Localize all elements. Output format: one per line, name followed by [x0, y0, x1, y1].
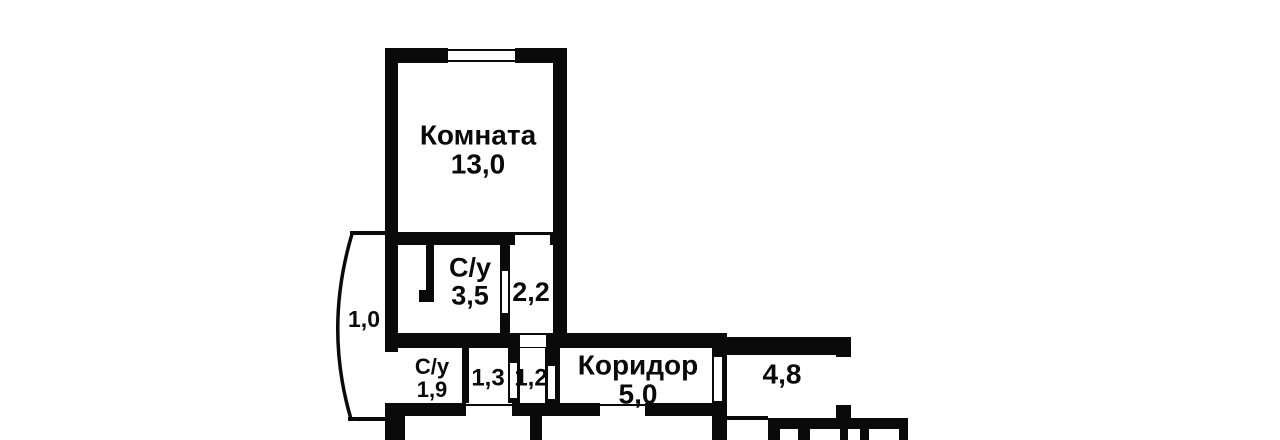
wall-komnata-right [553, 48, 567, 346]
room-label-hall22: 2,2 [512, 278, 550, 306]
room-komnata-area: 13,0 [420, 150, 536, 179]
room-label-balcony: 1,0 [348, 307, 380, 331]
window-komnata-line-top [448, 49, 515, 51]
wall-lower-right-stub-2 [798, 429, 810, 440]
wall-su35-left-foot [419, 290, 434, 302]
wall-lower-right-stub-5 [899, 429, 908, 440]
wall-stub-below-r13 [530, 416, 542, 440]
door-r12-koridor [548, 366, 555, 399]
wall-lower-right-bar [768, 418, 908, 429]
room-r48-area: 4,8 [763, 359, 802, 388]
door-balcony-opening [383, 352, 400, 403]
room-label-r48: 4,8 [763, 359, 802, 388]
room-label-koridor: Коридор 5,0 [578, 351, 699, 410]
room-su19-name: С/у [415, 355, 449, 378]
wall-lower-right-stub-4 [860, 429, 869, 440]
lintel-bottom-gap-left [466, 404, 512, 406]
room-label-komnata: Комната 13,0 [420, 121, 536, 180]
door-su35-hall22 [502, 271, 508, 313]
room-r13-area: 1,3 [471, 365, 504, 390]
door-koridor-r48 [714, 357, 722, 401]
room-su35-name: С/у [449, 254, 491, 282]
window-under-r48 [727, 416, 768, 420]
door-komnata-hall22 [515, 235, 550, 245]
wall-su19-r13 [462, 348, 469, 403]
floor-plan: Комната 13,0 С/у 3,5 2,2 1,0 С/у 1,9 1,3… [0, 0, 1280, 440]
door-r48-right-opening [836, 357, 851, 405]
wall-lower-right-stub-3 [840, 429, 848, 440]
wall-lower-right-stub-1 [768, 429, 780, 440]
room-komnata-name: Комната [420, 121, 536, 150]
room-su35-area: 3,5 [449, 282, 491, 310]
room-label-su35: С/у 3,5 [449, 254, 491, 311]
room-label-r12: 1,2 [514, 365, 547, 390]
wall-r48-top [712, 337, 851, 355]
room-r12-area: 1,2 [514, 365, 547, 390]
window-komnata-line-bottom [448, 60, 515, 62]
room-koridor-name: Коридор [578, 351, 699, 380]
door-hall22-r12 [520, 335, 546, 347]
room-balcony-area: 1,0 [348, 307, 380, 331]
wall-komnata-left [385, 48, 398, 232]
room-label-su19: С/у 1,9 [415, 355, 449, 401]
room-label-r13: 1,3 [471, 365, 504, 390]
room-su19-area: 1,9 [415, 378, 449, 401]
room-hall22-area: 2,2 [512, 278, 550, 306]
room-koridor-area: 5,0 [578, 380, 699, 409]
